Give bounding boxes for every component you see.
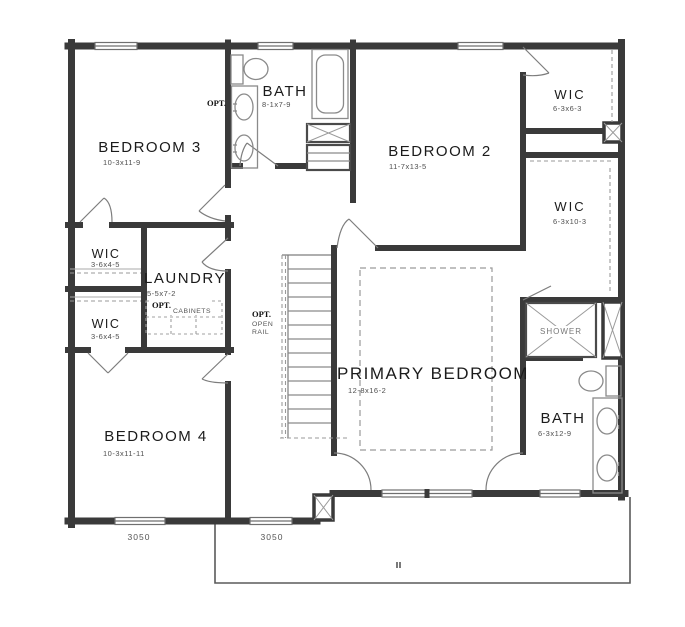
door-bedroom2 bbox=[337, 219, 378, 248]
room-label-wic-left-upper: WIC 3-6x4-5 bbox=[91, 247, 120, 269]
door-primary-entry bbox=[334, 453, 371, 490]
hall-linen-closet bbox=[307, 124, 350, 170]
vanity-primary-bath bbox=[593, 398, 622, 493]
post-bottom bbox=[314, 495, 333, 520]
svg-text:BATH: BATH bbox=[263, 83, 308, 100]
svg-text:11-7x13-5: 11-7x13-5 bbox=[389, 162, 427, 171]
primary-tray-ceiling bbox=[360, 268, 492, 450]
svg-text:BATH: BATH bbox=[541, 410, 586, 427]
room-label-bedroom-2: BEDROOM 2 11-7x13-5 bbox=[388, 143, 492, 171]
svg-text:6-3x12-9: 6-3x12-9 bbox=[538, 429, 572, 438]
door-bedroom4 bbox=[202, 354, 228, 383]
svg-text:OPT.: OPT. bbox=[252, 309, 271, 319]
shower-label: SHOWER bbox=[540, 327, 582, 336]
door-wic-top-right bbox=[523, 47, 549, 76]
svg-text:CABINETS: CABINETS bbox=[173, 308, 211, 315]
window-bottom-primary bbox=[382, 489, 472, 498]
bathtub bbox=[312, 50, 348, 119]
svg-text:6-3x6-3: 6-3x6-3 bbox=[553, 104, 582, 113]
svg-text:10-3x11-11: 10-3x11-11 bbox=[103, 449, 145, 458]
svg-text:WIC: WIC bbox=[554, 87, 585, 102]
toilet-upper-bath bbox=[231, 55, 268, 84]
svg-text:BEDROOM 4: BEDROOM 4 bbox=[104, 428, 208, 445]
svg-text:BEDROOM 2: BEDROOM 2 bbox=[388, 143, 492, 160]
post-shower-side bbox=[603, 302, 622, 358]
window-top-bedroom3 bbox=[95, 43, 137, 50]
door-bedroom3-entry bbox=[199, 185, 225, 221]
window-top-bedroom2 bbox=[458, 43, 503, 50]
room-label-bedroom-4: BEDROOM 4 10-3x11-11 bbox=[103, 428, 208, 458]
svg-text:8-1x7-9: 8-1x7-9 bbox=[262, 100, 291, 109]
svg-text:3-6x4-5: 3-6x4-5 bbox=[91, 260, 120, 269]
stairs-group bbox=[280, 255, 348, 438]
svg-text:10-3x11-9: 10-3x11-9 bbox=[103, 158, 141, 167]
window-label-right: 3050 bbox=[261, 532, 284, 542]
door-bath-upper bbox=[240, 143, 278, 166]
stair-rail-note: OPT. OPEN RAIL bbox=[252, 309, 273, 336]
svg-text:RAIL: RAIL bbox=[252, 329, 269, 336]
room-label-wic-right: WIC 6-3x10-3 bbox=[553, 199, 587, 226]
door-primary-bath bbox=[486, 453, 523, 490]
svg-text:WIC: WIC bbox=[92, 247, 121, 261]
window-bottom-primary-2 bbox=[540, 490, 580, 497]
window-size-labels: 3050 3050 bbox=[128, 532, 284, 542]
window-bottom-hall bbox=[250, 518, 292, 525]
floor-plan: BEDROOM 3 10-3x11-9 BATH 8-1x7-9 OPT. BE… bbox=[0, 0, 685, 627]
svg-text:LAUNDRY: LAUNDRY bbox=[144, 270, 226, 287]
room-label-wic-top-right: WIC 6-3x6-3 bbox=[553, 87, 586, 113]
door-wic-lower-double bbox=[88, 353, 128, 373]
window-bottom-bedroom4 bbox=[115, 518, 165, 525]
svg-text:SHOWER: SHOWER bbox=[540, 327, 582, 336]
door-bedroom3-wic bbox=[80, 198, 112, 222]
svg-text:OPEN: OPEN bbox=[252, 321, 273, 328]
rod-wic-right bbox=[530, 161, 613, 294]
svg-text:WIC: WIC bbox=[92, 317, 121, 331]
floor-plan-svg: BEDROOM 3 10-3x11-9 BATH 8-1x7-9 OPT. BE… bbox=[0, 0, 685, 627]
toilet-primary-bath bbox=[579, 366, 621, 396]
room-label-laundry: LAUNDRY 5-5x7-2 OPT. CABINETS bbox=[144, 270, 226, 315]
svg-text:5-5x7-2: 5-5x7-2 bbox=[147, 289, 176, 298]
svg-text:WIC: WIC bbox=[554, 199, 585, 214]
room-label-bath-primary: BATH 6-3x12-9 bbox=[538, 410, 585, 438]
svg-text:BEDROOM 3: BEDROOM 3 bbox=[98, 139, 202, 156]
svg-text:3-6x4-5: 3-6x4-5 bbox=[91, 332, 120, 341]
room-label-wic-left-lower: WIC 3-6x4-5 bbox=[91, 317, 120, 341]
window-top-bath bbox=[258, 43, 293, 50]
vanity-upper-bath bbox=[232, 86, 258, 168]
post-top-right bbox=[604, 123, 622, 142]
svg-text:12-8x16-2: 12-8x16-2 bbox=[348, 386, 386, 395]
svg-text:PRIMARY BEDROOM: PRIMARY BEDROOM bbox=[337, 364, 529, 383]
opt-vanity-note: OPT. bbox=[207, 98, 226, 108]
room-label-bedroom-3: BEDROOM 3 10-3x11-9 bbox=[98, 139, 202, 167]
opt-cabinets-note: OPT. bbox=[152, 300, 171, 310]
closet-rods bbox=[70, 50, 613, 301]
door-laundry bbox=[202, 238, 228, 271]
window-label-left: 3050 bbox=[128, 532, 151, 542]
svg-text:6-3x10-3: 6-3x10-3 bbox=[553, 217, 587, 226]
room-label-primary-bedroom: PRIMARY BEDROOM 12-8x16-2 bbox=[337, 364, 529, 395]
